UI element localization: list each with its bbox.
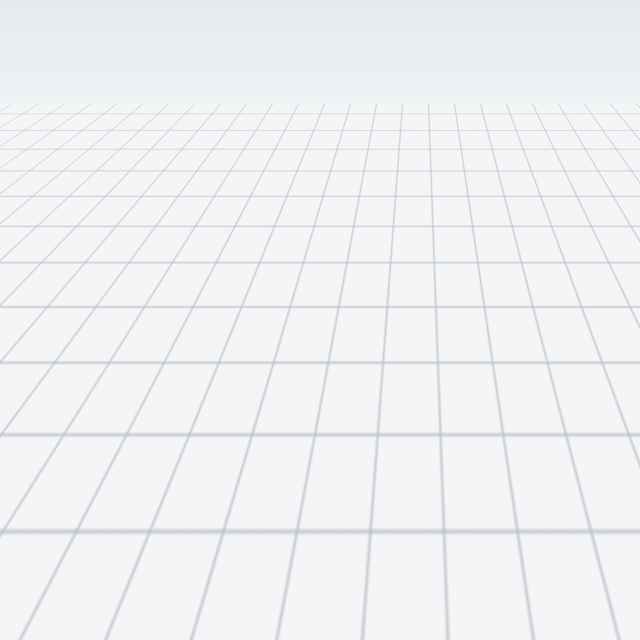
gold-decor [114, 467, 123, 476]
desk-chair [458, 242, 464, 248]
mural-building [628, 218, 640, 306]
bath-mat[interactable] [362, 241, 396, 262]
living-room[interactable] [0, 320, 358, 640]
study-room[interactable] [425, 197, 558, 260]
toilet[interactable] [368, 269, 376, 275]
orange-desk[interactable] [440, 224, 484, 253]
wall-fragment [0, 209, 14, 236]
wall-top [24, 238, 72, 334]
laptop [452, 230, 468, 242]
plant-decor [142, 464, 151, 473]
apartment-render[interactable] [0, 0, 640, 640]
floorplan-3d-viewport[interactable] [0, 0, 640, 640]
